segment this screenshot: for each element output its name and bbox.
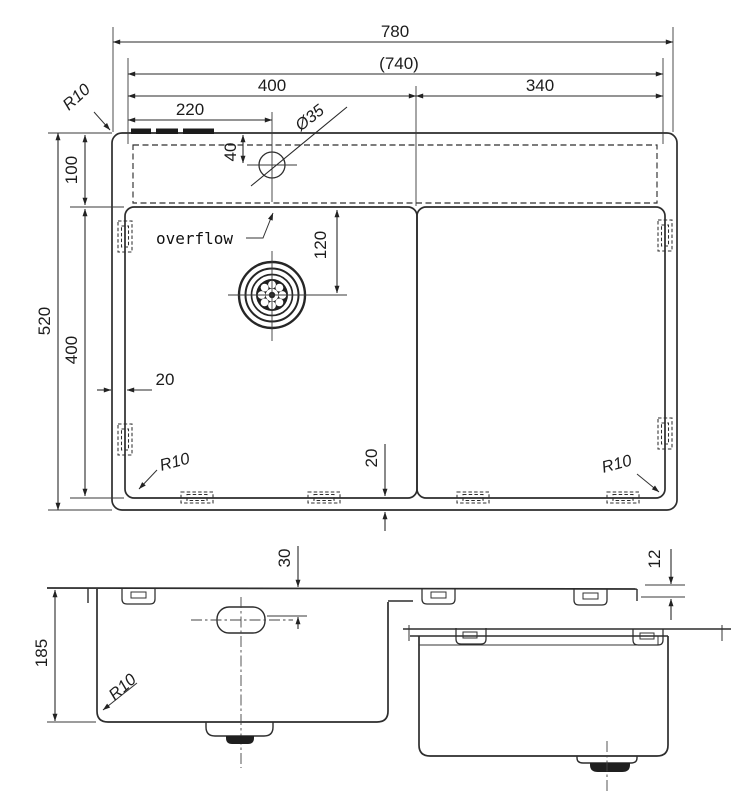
bowl-profile [97,589,388,722]
dim-rim-drop: 12 [645,550,664,569]
dim-bowl-depth: 185 [32,639,51,667]
drain-strainer [228,251,347,341]
dim-margin-left: 20 [156,370,175,389]
side-view [403,625,731,792]
radius-bottom-right: R10 [600,451,635,476]
sink-dimension-drawing: Ø35 40 120 overflow [0,0,742,800]
side-drain-boss-step [590,763,630,772]
dim-faucet-offset: 220 [176,100,204,119]
dim-deck-depth: 100 [62,156,81,184]
dim-margin-bottom: 20 [362,449,381,468]
overflow-label: overflow [156,229,233,248]
rim-line [47,588,637,589]
dim-drain-from-back: 120 [311,231,330,259]
technical-drawing-sheet: Ø35 40 120 overflow [0,0,742,800]
dim-bowl-front-back: 400 [62,336,81,364]
overflow-leader [246,213,273,238]
drain-boss-step [226,736,254,744]
top-edge-clip-bar [131,129,214,135]
rim-clips [122,588,607,605]
deck-dashed-outline [133,145,657,203]
dim-inner-width: (740) [379,54,419,73]
dim-overall-depth: 520 [35,307,54,335]
top-view: Ø35 40 120 overflow [35,22,677,531]
side-bowl-profile [419,636,668,756]
radius-bottom-left: R10 [158,449,193,474]
dim-overflow-from-rim: 30 [275,549,294,568]
r10-leader-bottom-left [139,470,157,489]
r10-leader-top-left [94,112,110,130]
dim-overall-width: 780 [381,22,409,41]
sink-outer-edge [112,133,677,510]
dim-faucet-dia: Ø35 [291,101,328,136]
dim-faucet-from-edge: 40 [221,143,240,162]
drain-boss-outline [206,722,273,736]
radius-top-left: R10 [59,80,94,114]
dim-right-bowl-width: 340 [526,76,554,95]
r10-leader-bottom-right [637,474,659,492]
dim-left-bowl-width: 400 [258,76,286,95]
front-view: 30 185 R10 12 [32,546,685,768]
radius-front-bottom: R10 [105,670,140,704]
